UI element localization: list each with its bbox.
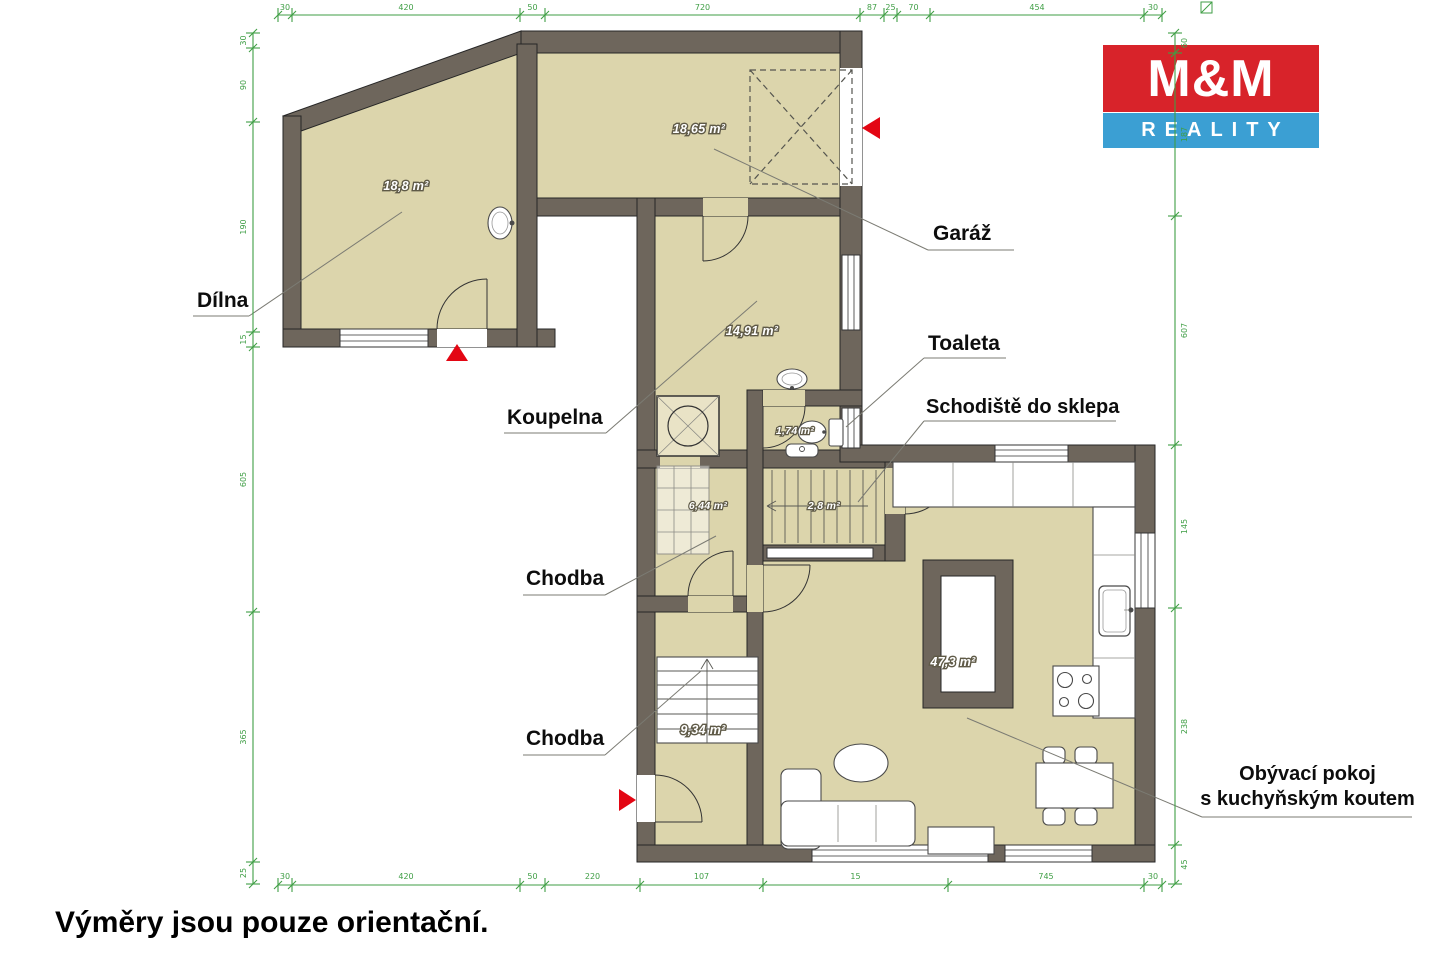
entrance-arrow-garage: [862, 117, 880, 139]
dimension-lines: 3042050720872570454303042050220107157453…: [239, 3, 1189, 892]
kitchen-counter: [893, 462, 1135, 718]
dimension-label: 454: [1029, 3, 1044, 12]
area-labels: 18,8 m² 18,65 m² 14,91 m² 1,74 m² 2,8 m²…: [383, 122, 976, 737]
dimension-tick-slash: [759, 881, 767, 889]
dimension-tick-slash: [249, 858, 257, 866]
logo-mm-text: M&M: [1103, 45, 1319, 112]
wall-corridor-right: [747, 390, 763, 862]
dimension-label: 720: [695, 3, 710, 12]
dimension-tick-slash: [1171, 441, 1179, 449]
dimension-tick-slash: [249, 343, 257, 351]
room-schodiste-fill: [755, 458, 900, 558]
window-living-top: [995, 445, 1068, 462]
opening-dilna-entry: [437, 329, 487, 347]
door-main-entry: [655, 775, 702, 822]
wall-corridor-left: [637, 198, 655, 862]
dimension-label: 238: [1180, 719, 1189, 734]
room-label-obyvaci-line2: s kuchyňským koutem: [1200, 787, 1415, 812]
dimension-label: 70: [908, 3, 918, 12]
wall-chodba-divider: [637, 596, 763, 612]
dimension-label: 15: [850, 872, 860, 881]
wall-living-right: [1135, 445, 1155, 862]
wall-bottom: [637, 845, 1155, 862]
room-label-chodba-horni: Chodba: [526, 567, 604, 591]
wall-dilna-slanted-top: [283, 31, 521, 131]
dimension-tick-slash: [541, 11, 549, 19]
dimension-tick-slash: [856, 11, 864, 19]
dimension-label: 745: [1038, 872, 1053, 881]
dimension-label: 90: [239, 80, 248, 90]
wall-living-top: [840, 445, 1155, 462]
door-toaleta: [763, 406, 805, 448]
dimension-label: 365: [239, 729, 248, 744]
dimension-label: 25: [239, 868, 248, 878]
opening-stair-living: [885, 468, 905, 514]
dimension-tick-slash: [880, 11, 888, 19]
area-label-chodba-horni: 6,44 m²: [689, 500, 727, 512]
toilet-wc: [798, 419, 843, 446]
window-toaleta: [842, 408, 860, 448]
dimension-label: 50: [527, 872, 537, 881]
dimension-tick-slash: [1140, 881, 1148, 889]
dimension-label: 190: [239, 219, 248, 234]
room-dilna-fill: [292, 38, 531, 340]
area-label-schodiste: 2,8 m²: [807, 500, 840, 512]
stove: [1053, 666, 1099, 716]
door-living: [763, 565, 810, 612]
dimension-tick-slash: [1140, 11, 1148, 19]
room-label-koupelna: Koupelna: [507, 406, 603, 430]
dimension-label: 420: [398, 872, 413, 881]
opening-garage-door: [840, 68, 862, 186]
logo-reality-text: REALITY: [1103, 113, 1319, 148]
dimension-tick-slash: [249, 29, 257, 37]
dimension-tick-slash: [249, 880, 257, 888]
dimension-tick-slash: [541, 881, 549, 889]
wall-stair-bottom: [747, 545, 905, 561]
dimension-tick-slash: [1158, 11, 1166, 19]
window-living-bottom-large: [812, 845, 988, 862]
dimension-tick-slash: [1171, 212, 1179, 220]
wall-stair-right: [885, 450, 905, 561]
area-label-chodba-dolni: 9,34 m²: [680, 723, 726, 737]
window-dilna: [340, 329, 428, 347]
dimension-label: 607: [1180, 323, 1189, 338]
room-label-chodba-dolni: Chodba: [526, 727, 604, 751]
dimension-tick-slash: [516, 11, 524, 19]
wall-dilna-bottom: [283, 329, 555, 347]
opening-toilet: [763, 390, 805, 406]
room-label-toaleta: Toaleta: [928, 332, 1000, 356]
dimension-tick-slash: [249, 608, 257, 616]
dimension-tick-slash: [249, 118, 257, 126]
room-label-garaz: Garáž: [933, 222, 991, 246]
dimension-label: 15: [239, 334, 248, 344]
door-swings: [437, 216, 951, 822]
dimension-tick-slash: [1171, 604, 1179, 612]
dimension-tick-slash: [1171, 841, 1179, 849]
dimension-tick-slash: [636, 881, 644, 889]
room-koupelna-toaleta-fill: [645, 205, 855, 460]
wall-garage-top: [521, 31, 862, 53]
area-label-garaz: 18,65 m²: [673, 122, 726, 136]
entrance-arrows: [446, 117, 880, 811]
dimension-label: 420: [398, 3, 413, 12]
dimension-label: 50: [527, 3, 537, 12]
opening-living: [747, 565, 763, 612]
area-label-obyvaci: 47,3 m²: [929, 655, 976, 669]
dimension-tick-slash: [1171, 880, 1179, 888]
dimension-tick-slash: [516, 881, 524, 889]
dimension-label: 30: [1148, 3, 1158, 12]
dimension-tick-slash: [274, 881, 282, 889]
basement-stairs: [767, 470, 876, 543]
sofa: [781, 769, 915, 849]
door-koupelna-strip: [660, 410, 700, 450]
door-garage-koupelna: [703, 216, 748, 261]
room-label-schodiste: Schodiště do sklepa: [926, 396, 1119, 419]
wall-strip-bottom: [637, 450, 905, 468]
dimension-label: 30: [280, 872, 290, 881]
kitchen-sink: [1099, 586, 1134, 636]
dimension-label: 30: [239, 35, 248, 45]
window-living-bottom-small: [1005, 845, 1092, 862]
upper-stairs: [657, 657, 758, 743]
dimension-label: 107: [694, 872, 709, 881]
walls: [283, 31, 1155, 862]
wall-dilna-right: [517, 44, 537, 347]
leader-lines: [193, 149, 1412, 817]
north-marker-icon: [1201, 2, 1212, 13]
wall-right-upper: [840, 31, 862, 462]
dimension-tick-slash: [893, 11, 901, 19]
opening-main-entry: [637, 775, 655, 822]
room-label-obyvaci-line1: Obývací pokoj: [1200, 762, 1415, 787]
dimension-tick-slash: [249, 44, 257, 52]
entrance-arrow-dilna: [446, 344, 468, 361]
room-label-obyvaci: Obývací pokoj s kuchyňským koutem: [1200, 762, 1415, 812]
door-openings: [437, 68, 905, 822]
dimension-label: 30: [280, 3, 290, 12]
dimension-label: 87: [867, 3, 877, 12]
dimension-label: 605: [239, 472, 248, 487]
door-stair-living: [905, 468, 951, 514]
wall-dilna-left: [283, 116, 301, 347]
dimension-label: 25: [885, 3, 895, 12]
dilna-sink: [488, 207, 515, 239]
dimension-label: 145: [1180, 519, 1189, 534]
koupelna-sink: [777, 369, 807, 390]
chodba-grid-cabinet: [657, 466, 709, 554]
shower: [657, 396, 719, 456]
dimension-tick-slash: [1171, 29, 1179, 37]
tv-stand: [928, 827, 994, 854]
entrance-arrow-main: [619, 789, 636, 811]
room-label-dilna: Dílna: [197, 289, 248, 313]
chimney-island: [923, 560, 1013, 708]
disclaimer-text: Výměry jsou pouze orientační.: [55, 906, 488, 940]
opening-garage-koupelna: [703, 198, 748, 216]
room-obyvaci-fill: [755, 450, 1148, 855]
window-koupelna: [842, 255, 860, 330]
wall-garage-bottom: [537, 198, 862, 216]
dimension-label: 220: [585, 872, 600, 881]
room-fills: [292, 38, 1148, 857]
floor-plan-page: M&M REALITY: [0, 0, 1440, 960]
dimension-tick-slash: [249, 328, 257, 336]
windows: [340, 255, 1155, 862]
dimension-tick-slash: [1158, 881, 1166, 889]
room-chodby-fill: [645, 445, 760, 857]
area-label-dilna: 18,8 m²: [383, 179, 429, 193]
wall-toilet-top: [747, 390, 862, 406]
dimension-label: 30: [1148, 872, 1158, 881]
toilet-sink: [786, 444, 818, 457]
dining-set: [1036, 747, 1113, 825]
dimension-tick-slash: [944, 881, 952, 889]
window-living-right: [1135, 533, 1155, 608]
garage-door-marking: [750, 70, 852, 184]
dimension-tick-slash: [926, 11, 934, 19]
area-label-koupelna: 14,91 m²: [726, 324, 779, 338]
opening-chodba: [688, 596, 733, 612]
room-garaz-fill: [525, 40, 855, 212]
dimension-label: 45: [1180, 859, 1189, 869]
mm-reality-logo: M&M REALITY: [1103, 45, 1319, 148]
stair-niche: [767, 548, 873, 558]
dimension-tick-slash: [288, 881, 296, 889]
opening-strip: [660, 450, 700, 468]
door-dilna-entry: [437, 279, 487, 329]
dimension-tick-slash: [274, 11, 282, 19]
door-chodba: [688, 551, 733, 596]
dimension-tick-slash: [288, 11, 296, 19]
area-label-toaleta: 1,74 m²: [776, 425, 814, 437]
coffee-table: [834, 744, 888, 782]
